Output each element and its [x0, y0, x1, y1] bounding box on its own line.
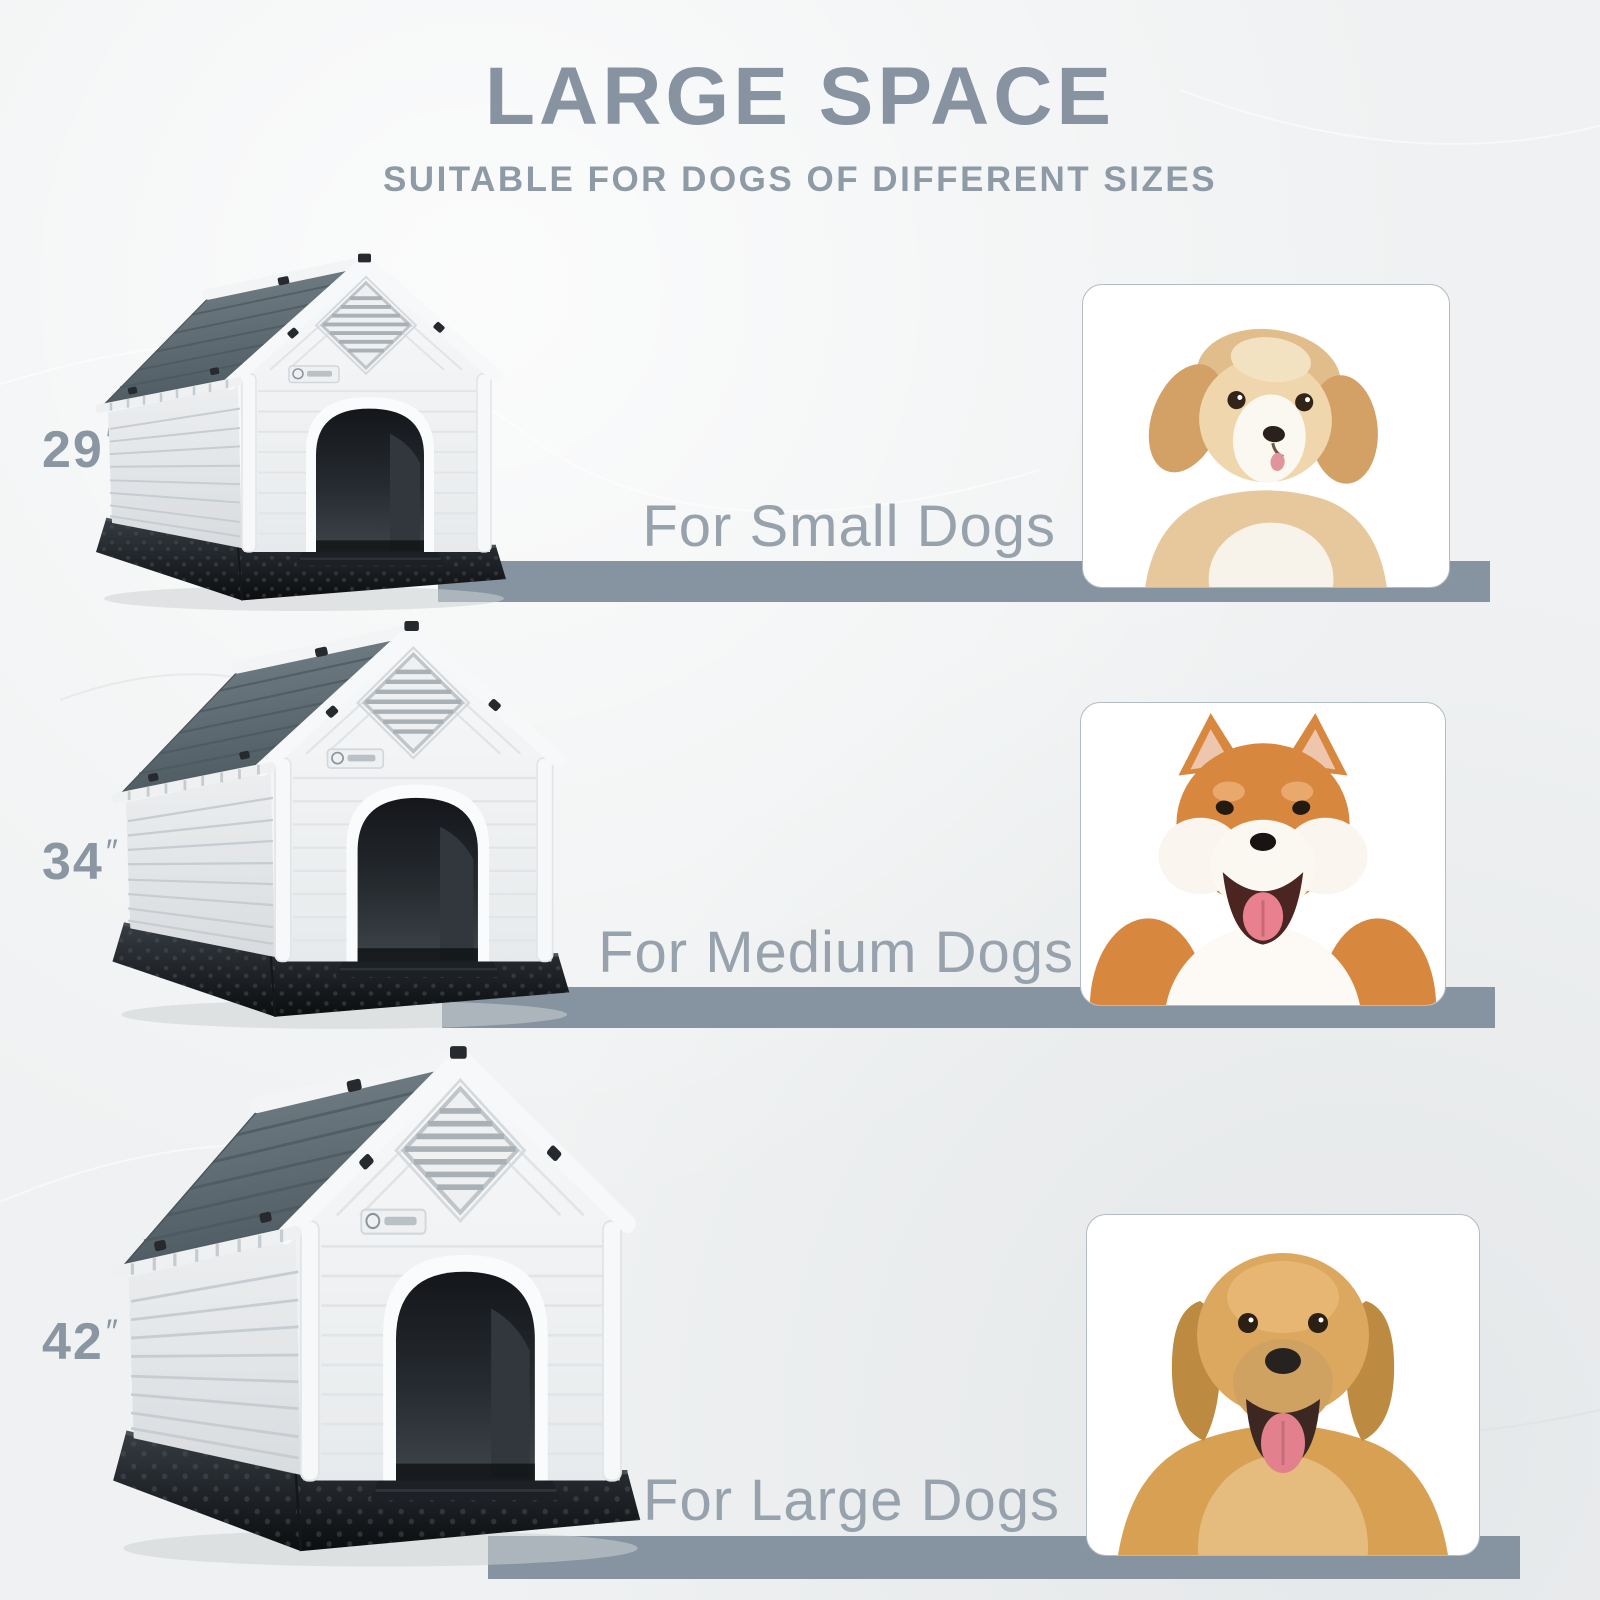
page-title: LARGE SPACE [0, 56, 1600, 138]
page-root: LARGE SPACE SUITABLE FOR DOGS OF DIFFERE… [0, 0, 1600, 1600]
doghouse-42-inch-image [108, 1032, 648, 1568]
shiba-illustration [1090, 713, 1436, 1005]
small-dog-photo [1083, 285, 1449, 587]
puppy-illustration [1132, 315, 1399, 587]
doghouse-34-inch-image [108, 610, 576, 1030]
doghouse-29-inch-image [92, 244, 512, 612]
dog-photo-card-medium [1080, 702, 1446, 1006]
dog-photo-card-large [1086, 1214, 1480, 1556]
large-dog-photo [1087, 1215, 1479, 1555]
size-value: 42 [42, 1313, 104, 1371]
medium-dog-photo [1081, 703, 1445, 1005]
page-subtitle: SUITABLE FOR DOGS OF DIFFERENT SIZES [0, 162, 1600, 197]
golden-retriever-illustration [1118, 1253, 1448, 1555]
size-value: 34 [42, 833, 104, 891]
dog-photo-card-small [1082, 284, 1450, 588]
